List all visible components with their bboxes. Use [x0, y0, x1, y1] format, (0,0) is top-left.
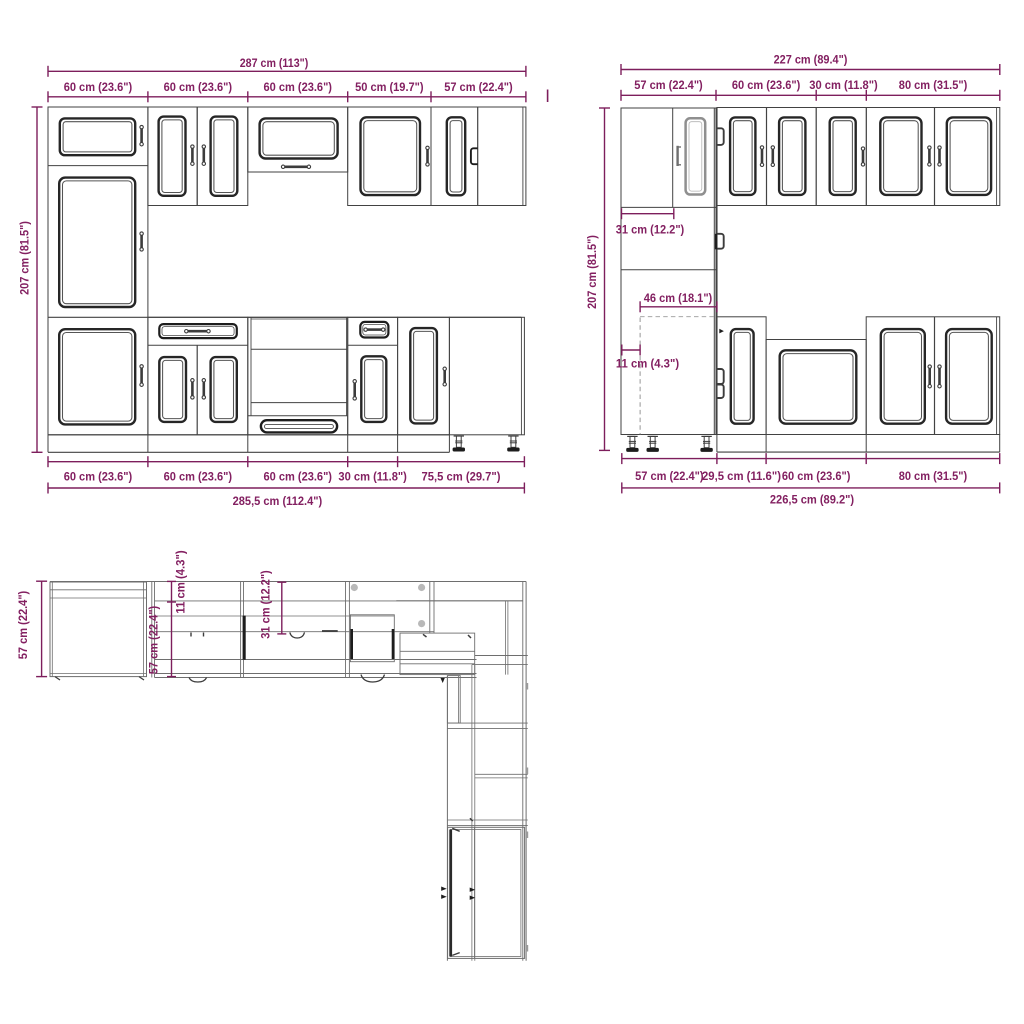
svg-text:207 cm (81.5"): 207 cm (81.5") [18, 221, 32, 295]
svg-text:30 cm (11.8"): 30 cm (11.8") [809, 78, 878, 92]
svg-text:57 cm (22.4"): 57 cm (22.4") [16, 591, 30, 660]
svg-text:80 cm (31.5"): 80 cm (31.5") [899, 469, 968, 483]
svg-text:11 cm (4.3"): 11 cm (4.3") [174, 550, 188, 613]
svg-text:60 cm (23.6"): 60 cm (23.6") [164, 80, 233, 94]
svg-text:31 cm (12.2"): 31 cm (12.2") [259, 570, 273, 639]
svg-text:30 cm (11.8"): 30 cm (11.8") [338, 470, 407, 484]
svg-text:60 cm (23.6"): 60 cm (23.6") [64, 80, 133, 94]
svg-text:226,5 cm (89.2"): 226,5 cm (89.2") [770, 493, 854, 507]
svg-text:29,5 cm (11.6"): 29,5 cm (11.6") [702, 469, 781, 483]
svg-text:31 cm (12.2"): 31 cm (12.2") [616, 223, 685, 237]
svg-text:11 cm (4.3"): 11 cm (4.3") [616, 357, 679, 371]
svg-text:207 cm (81.5"): 207 cm (81.5") [585, 235, 599, 309]
svg-text:227 cm (89.4"): 227 cm (89.4") [774, 53, 848, 67]
svg-text:285,5 cm (112.4"): 285,5 cm (112.4") [233, 494, 323, 508]
svg-text:57 cm (22.4"): 57 cm (22.4") [635, 469, 704, 483]
svg-text:60 cm (23.6"): 60 cm (23.6") [264, 470, 333, 484]
svg-text:60 cm (23.6"): 60 cm (23.6") [732, 78, 801, 92]
svg-text:60 cm (23.6"): 60 cm (23.6") [264, 80, 333, 94]
svg-text:60 cm (23.6"): 60 cm (23.6") [64, 470, 133, 484]
svg-text:50 cm (19.7"): 50 cm (19.7") [355, 80, 424, 94]
svg-text:57 cm (22.4"): 57 cm (22.4") [634, 78, 703, 92]
svg-text:46 cm (18.1"): 46 cm (18.1") [644, 291, 713, 305]
svg-text:287 cm (113"): 287 cm (113") [240, 56, 309, 70]
svg-text:57 cm (22.4"): 57 cm (22.4") [147, 606, 161, 675]
svg-text:60 cm (23.6"): 60 cm (23.6") [164, 470, 233, 484]
svg-text:57 cm (22.4"): 57 cm (22.4") [444, 80, 513, 94]
svg-text:75,5 cm (29.7"): 75,5 cm (29.7") [422, 470, 501, 484]
svg-text:60 cm (23.6"): 60 cm (23.6") [782, 469, 851, 483]
svg-text:80 cm (31.5"): 80 cm (31.5") [899, 78, 968, 92]
